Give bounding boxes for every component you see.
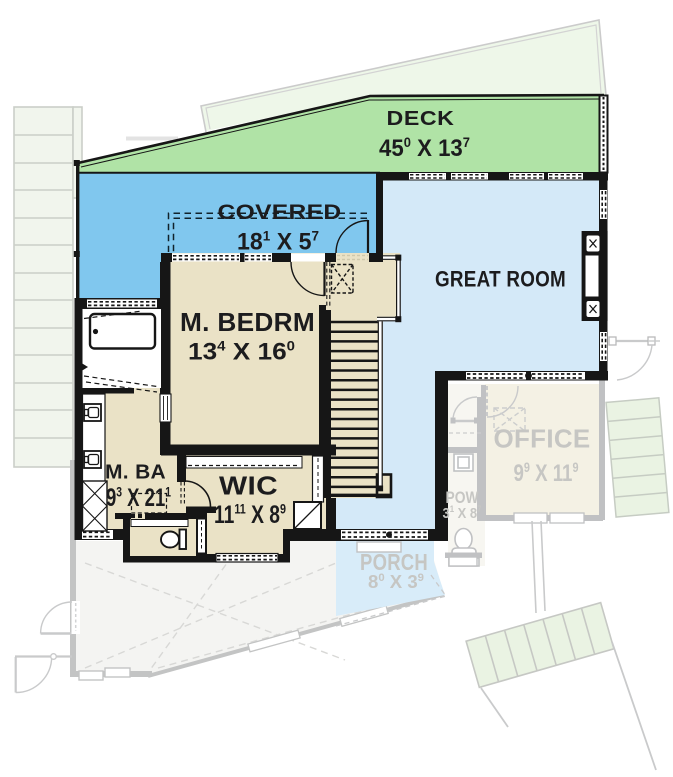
svg-text:WIC: WIC (219, 473, 278, 501)
svg-text:DECK: DECK (387, 107, 455, 130)
svg-text:OFFICE: OFFICE (494, 426, 591, 454)
svg-text:134 X 160: 134 X 160 (188, 338, 295, 366)
svg-text:450 X 137: 450 X 137 (379, 134, 470, 162)
svg-text:1111 X 89: 1111 X 89 (214, 501, 286, 530)
svg-text:93 X 211: 93 X 211 (106, 484, 171, 513)
svg-text:M. BA: M. BA (105, 461, 166, 484)
svg-text:M. BEDRM: M. BEDRM (180, 307, 315, 337)
svg-text:COVERED: COVERED (218, 200, 342, 224)
svg-text:31 X 87: 31 X 87 (443, 504, 482, 522)
svg-text:99 X 119: 99 X 119 (514, 459, 579, 487)
svg-text:181 X 57: 181 X 57 (237, 228, 319, 256)
svg-text:GREAT ROOM: GREAT ROOM (435, 267, 566, 292)
svg-text:80 X 39: 80 X 39 (368, 572, 424, 592)
